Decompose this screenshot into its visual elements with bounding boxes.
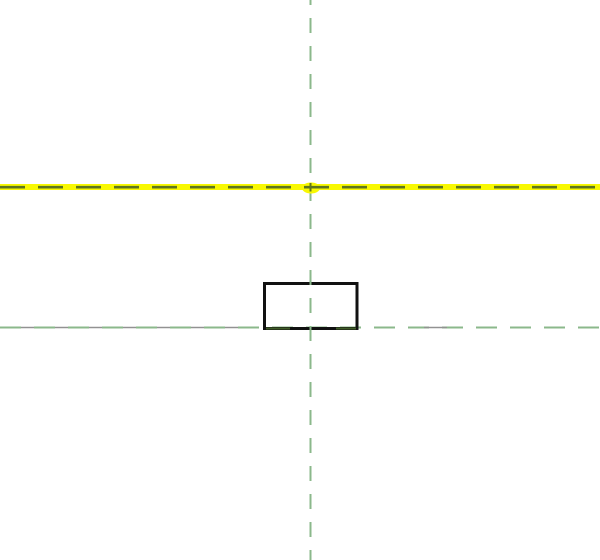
- canvas-background: [0, 0, 600, 560]
- drawing-viewport: [0, 0, 600, 560]
- drawing-canvas[interactable]: [0, 0, 600, 560]
